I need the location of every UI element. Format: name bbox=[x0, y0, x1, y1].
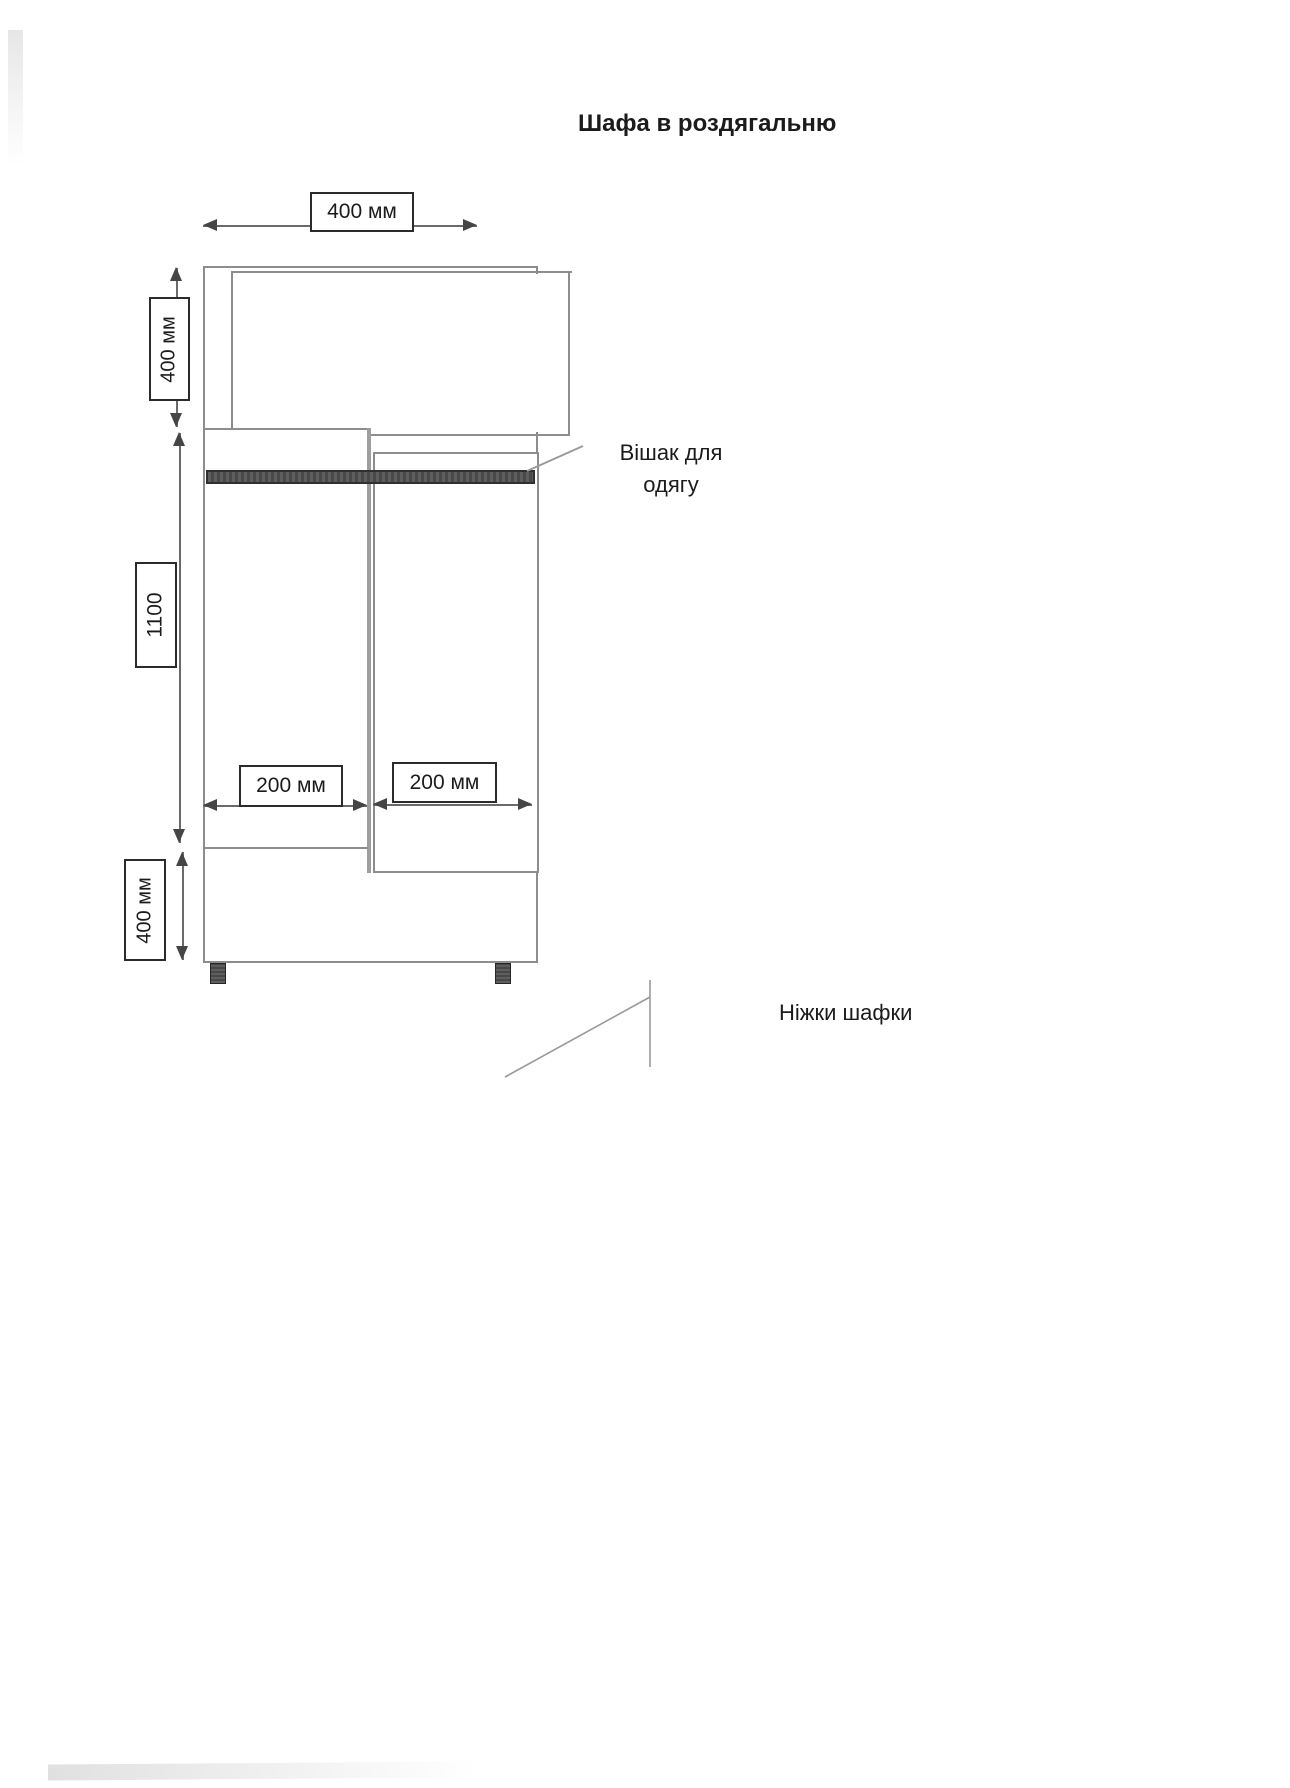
dim-right-compartment-line bbox=[373, 804, 532, 806]
dim-left-compartment-value: 200 мм bbox=[256, 774, 326, 798]
scanned-page: Шафа в роздягальню 400 мм 400 мм 1100 40… bbox=[0, 0, 1290, 1788]
leader-lines-layer bbox=[0, 0, 1290, 1788]
dim-left-compartment-label-box: 200 мм bbox=[239, 765, 343, 807]
cabinet-leg-left bbox=[210, 963, 226, 984]
hanger-rod bbox=[206, 470, 535, 484]
arrowhead-down-icon bbox=[173, 829, 185, 843]
dim-upper-height-label-box: 400 мм bbox=[149, 297, 190, 401]
top-compartment-right-edge bbox=[568, 271, 570, 436]
dim-top-width-value: 400 мм bbox=[327, 200, 397, 224]
cabinet-leg-right bbox=[495, 963, 511, 984]
hanger-callout-line1: Вішак для bbox=[598, 440, 744, 466]
arrowhead-down-icon bbox=[176, 946, 188, 960]
hanger-callout-line2: одягу bbox=[598, 472, 744, 498]
arrowhead-left-icon bbox=[203, 799, 217, 811]
dim-middle-height-label-box: 1100 bbox=[135, 562, 177, 668]
dim-upper-height-value: 400 мм bbox=[158, 316, 181, 382]
top-compartment-top-edge bbox=[231, 271, 572, 273]
legs-leader-diagonal-line bbox=[505, 997, 650, 1077]
arrowhead-left-icon bbox=[373, 798, 387, 810]
top-compartment-bottom-edge bbox=[368, 434, 570, 436]
dim-right-compartment-label-box: 200 мм bbox=[392, 762, 497, 803]
arrowhead-up-icon bbox=[173, 432, 185, 446]
upper-shelf-line bbox=[203, 428, 368, 430]
dim-middle-height-value: 1100 bbox=[144, 592, 168, 637]
dim-top-width-label-box: 400 мм bbox=[310, 192, 414, 232]
dim-lower-height-value: 400 мм bbox=[134, 877, 157, 943]
arrowhead-right-icon bbox=[463, 219, 477, 231]
arrowhead-up-icon bbox=[176, 852, 188, 866]
top-compartment-left-edge bbox=[231, 272, 233, 429]
dim-lower-height-label-box: 400 мм bbox=[124, 859, 166, 961]
right-compartment-box bbox=[373, 452, 539, 873]
arrowhead-right-icon bbox=[518, 798, 532, 810]
lower-shelf-line bbox=[203, 847, 368, 849]
scan-edge-artifact-bottom bbox=[48, 1761, 478, 1780]
scan-edge-artifact-left bbox=[8, 30, 23, 165]
center-divider bbox=[367, 428, 371, 873]
arrowhead-down-icon bbox=[170, 413, 182, 427]
arrowhead-left-icon bbox=[203, 219, 217, 231]
arrowhead-right-icon bbox=[353, 799, 367, 811]
hanger-callout: Вішак для одягу bbox=[598, 440, 744, 498]
diagram-title: Шафа в роздягальню bbox=[578, 110, 836, 138]
dim-right-compartment-value: 200 мм bbox=[410, 771, 480, 795]
dim-lower-height-line bbox=[182, 852, 184, 960]
arrowhead-up-icon bbox=[170, 267, 182, 281]
legs-callout: Ніжки шафки bbox=[779, 1000, 912, 1026]
dim-middle-height-line bbox=[179, 433, 181, 843]
top-compartment-fill bbox=[233, 274, 568, 432]
